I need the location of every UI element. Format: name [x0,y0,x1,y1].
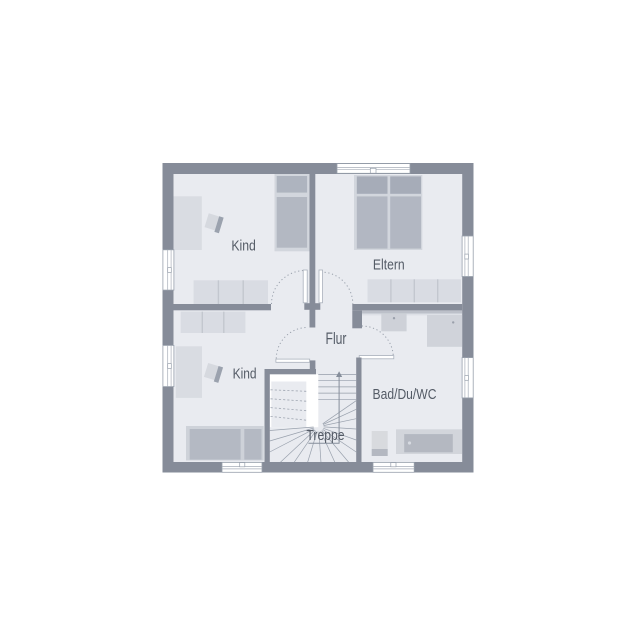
svg-text:Bad/Du/WC: Bad/Du/WC [373,387,437,403]
svg-text:Eltern: Eltern [373,258,405,274]
svg-text:Flur: Flur [326,330,347,348]
svg-text:Kind: Kind [233,367,257,383]
svg-text:Treppe: Treppe [306,428,344,444]
svg-text:Kind: Kind [231,238,256,254]
